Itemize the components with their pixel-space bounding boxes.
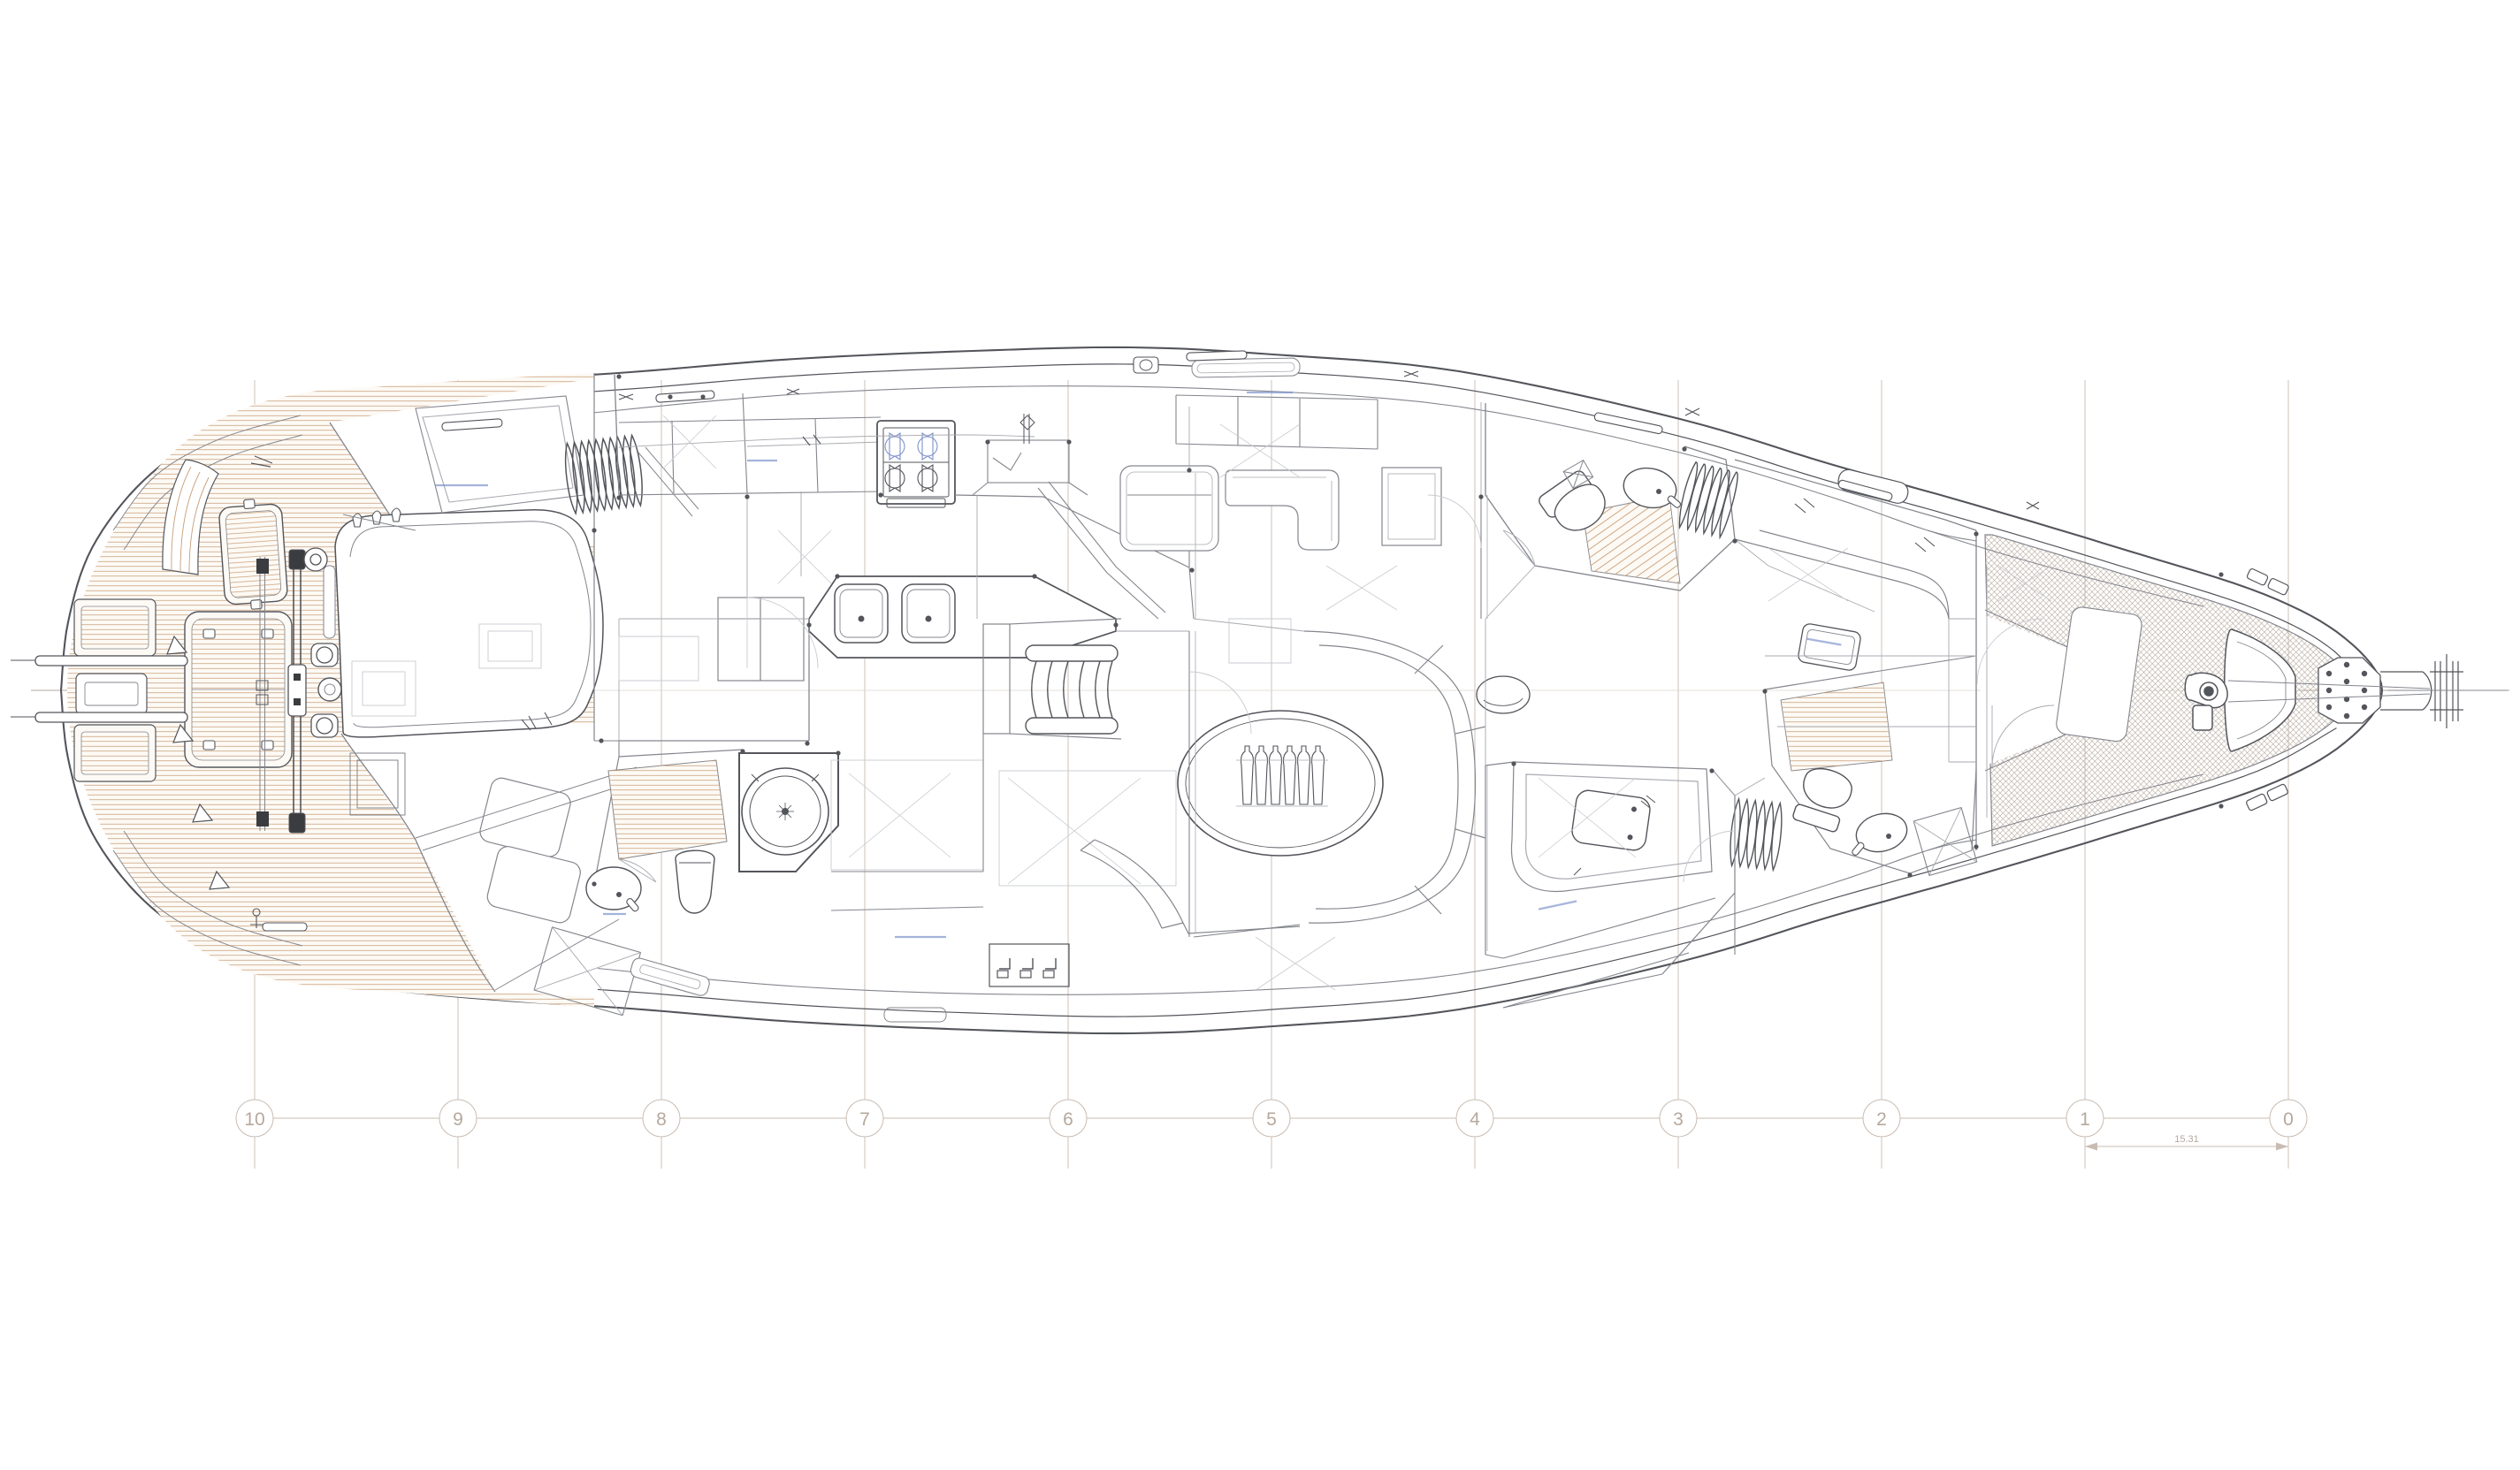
svg-text:8: 8 [656,1109,667,1130]
svg-text:5: 5 [1266,1109,1277,1130]
svg-text:10: 10 [244,1109,264,1130]
svg-text:0: 0 [2283,1109,2294,1130]
svg-text:7: 7 [859,1109,870,1130]
svg-text:2: 2 [1876,1109,1887,1130]
svg-text:9: 9 [453,1109,463,1130]
svg-text:1: 1 [2080,1109,2090,1130]
svg-text:3: 3 [1673,1109,1684,1130]
svg-text:6: 6 [1063,1109,1073,1130]
svg-text:4: 4 [1470,1109,1480,1130]
svg-text:15.31: 15.31 [2174,1134,2199,1145]
